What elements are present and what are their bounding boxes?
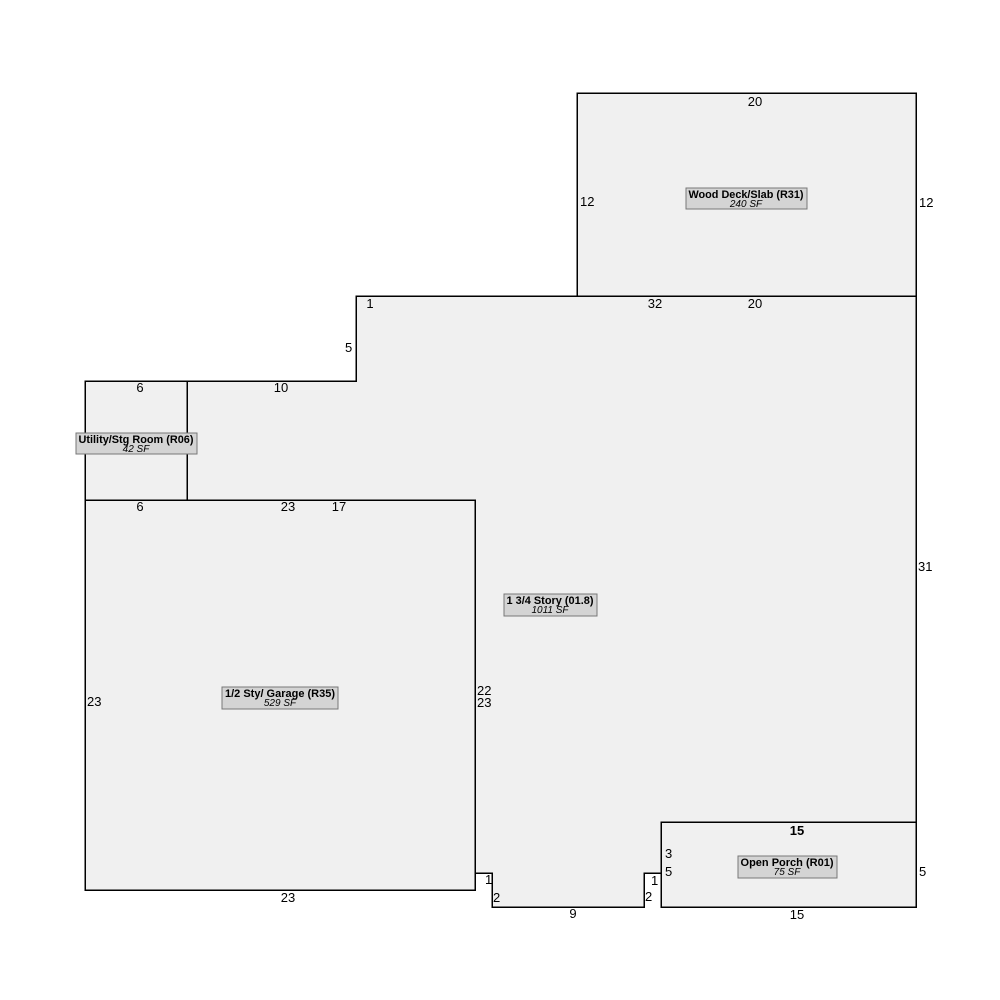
dim-main-top-a: 1 (366, 296, 373, 311)
property-sketch: 20 12 12 1 32 20 5 6 10 6 23 17 31 22 23… (0, 0, 1000, 1000)
dim-garage-left: 23 (87, 694, 101, 709)
dim-porch-left-5: 5 (665, 864, 672, 879)
dim-garage-top: 23 (281, 499, 295, 514)
area-label-porch: Open Porch (R01) 75 SF (738, 856, 837, 878)
area-label-garage: 1/2 Sty/ Garage (R35) 529 SF (222, 687, 338, 709)
dim-utility-bottom: 6 (136, 499, 143, 514)
dim-main-right: 31 (918, 559, 932, 574)
dim-main-garage-shared: 17 (332, 499, 346, 514)
area-label-area: 1011 SF (531, 605, 569, 616)
dim-step-left-2: 2 (493, 890, 500, 905)
dim-main-left-upper: 5 (345, 340, 352, 355)
dim-garage-right: 23 (477, 695, 491, 710)
area-label-area: 75 SF (774, 867, 802, 878)
dim-porch-left-3: 3 (665, 846, 672, 861)
area-label-wood-deck: Wood Deck/Slab (R31) 240 SF (686, 188, 807, 210)
dim-notch-bottom: 9 (569, 906, 576, 921)
dim-utility-top: 6 (136, 380, 143, 395)
dim-main-upper-left: 10 (274, 380, 288, 395)
dim-garage-bottom: 23 (281, 890, 295, 905)
dim-deck-bottom: 20 (748, 296, 762, 311)
area-label-main-story: 1 3/4 Story (01.8) 1011 SF (504, 594, 597, 616)
dim-deck-top: 20 (748, 94, 762, 109)
dim-main-top-b: 32 (648, 296, 662, 311)
dim-porch-right: 5 (919, 864, 926, 879)
dim-step-right-1: 1 (651, 873, 658, 888)
area-label-utility: Utility/Stg Room (R06) 42 SF (76, 433, 197, 455)
dim-step-left-1: 1 (485, 872, 492, 887)
dim-porch-top: 15 (790, 823, 804, 838)
dim-deck-left: 12 (580, 194, 594, 209)
dim-deck-right: 12 (919, 195, 933, 210)
dim-step-right-2: 2 (645, 889, 652, 904)
area-label-area: 529 SF (264, 698, 297, 709)
area-label-area: 240 SF (729, 199, 763, 210)
area-label-area: 42 SF (123, 444, 151, 455)
dim-porch-bottom: 15 (790, 907, 804, 922)
